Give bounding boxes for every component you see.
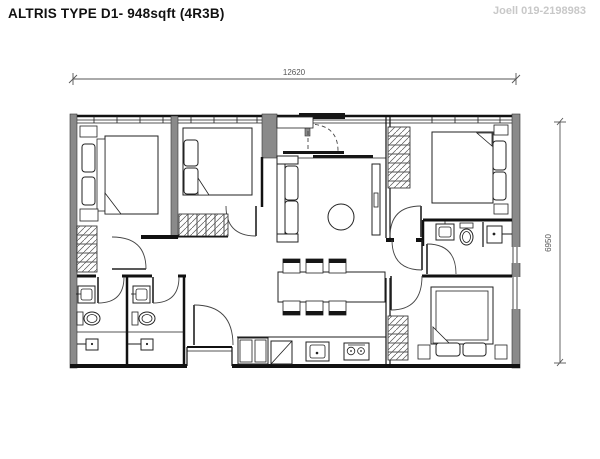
dimension-top-label: 12620 <box>283 68 306 77</box>
wall-bed3-balcony <box>262 114 277 158</box>
nightstand-icon <box>494 204 508 214</box>
master-bath-door <box>427 244 456 274</box>
fridge-icon <box>271 341 292 364</box>
dining-table-icon <box>278 272 385 302</box>
right-wall <box>512 114 520 368</box>
corridor-door <box>392 240 422 270</box>
wardrobe-master-bedroom <box>388 127 410 188</box>
bathroom-2 <box>128 286 155 350</box>
toilet-icon <box>77 312 100 325</box>
pillow-icon <box>493 172 506 200</box>
pillow-icon <box>82 177 95 205</box>
shower-icon <box>77 339 98 350</box>
dimension-right: 6950 <box>544 118 566 366</box>
pillow-icon <box>436 343 460 356</box>
cabinet-icon <box>238 338 268 364</box>
nightstand-icon <box>495 345 507 359</box>
sink-icon <box>131 286 150 303</box>
wardrobe-bedroom2 <box>77 226 97 272</box>
chair-icon <box>283 259 300 273</box>
tv-console-icon <box>372 164 380 235</box>
chair-icon <box>306 301 323 315</box>
toilet-icon <box>460 223 473 245</box>
sink-icon <box>76 286 95 303</box>
kitchen-sink-icon <box>306 342 329 361</box>
master-bedroom-door <box>390 206 421 237</box>
kitchen <box>237 337 386 364</box>
living-room <box>277 117 380 242</box>
bathroom2-door <box>153 277 179 303</box>
shower-icon <box>487 226 512 243</box>
left-wall <box>70 114 77 368</box>
entrance-door <box>194 305 233 345</box>
chair-icon <box>283 301 300 315</box>
nightstand-icon <box>80 209 98 221</box>
master-bathroom <box>436 221 512 245</box>
dimension-top: 12620 <box>69 68 520 85</box>
bedroom2-door <box>112 237 146 269</box>
coffee-table-icon <box>328 204 354 230</box>
bathroom-1 <box>76 286 100 350</box>
bedroom-3 <box>183 128 252 195</box>
sofa-icon <box>277 156 298 242</box>
nightstand-icon <box>418 345 430 359</box>
bedroom-1 <box>418 287 507 359</box>
wall-bed2-bed3 <box>171 116 178 238</box>
chair-icon <box>329 259 346 273</box>
bedroom3-door <box>226 206 256 236</box>
bed-icon <box>105 136 158 214</box>
toilet-icon <box>132 312 155 325</box>
bathroom1-door <box>98 277 124 303</box>
sink-icon <box>436 221 454 240</box>
bed-icon <box>432 132 493 203</box>
nightstand-icon <box>494 125 508 135</box>
right-wall-windows <box>511 247 521 309</box>
floor-plan-page: ALTRIS TYPE D1- 948sqft (4R3B) Joell 019… <box>0 0 600 459</box>
wardrobe-bedroom1 <box>388 316 408 360</box>
chair-icon <box>306 259 323 273</box>
stove-icon <box>344 343 369 360</box>
wardrobe-bedroom3 <box>179 214 228 236</box>
dining-area <box>278 259 385 315</box>
chair-icon <box>329 301 346 315</box>
bedroom1-door <box>391 276 422 310</box>
pillow-icon <box>463 343 486 356</box>
pillow-icon <box>82 144 95 172</box>
floor-plan-drawing: 12620 6950 <box>0 0 600 459</box>
master-bedroom <box>432 125 508 214</box>
pillow-icon <box>184 168 198 194</box>
dimension-right-label: 6950 <box>544 234 553 252</box>
nightstand-icon <box>80 126 97 137</box>
pillow-icon <box>184 140 198 166</box>
bedroom-2 <box>80 126 158 221</box>
shower-icon <box>128 339 153 350</box>
ac-ledge <box>277 117 313 128</box>
pillow-icon <box>493 141 506 170</box>
